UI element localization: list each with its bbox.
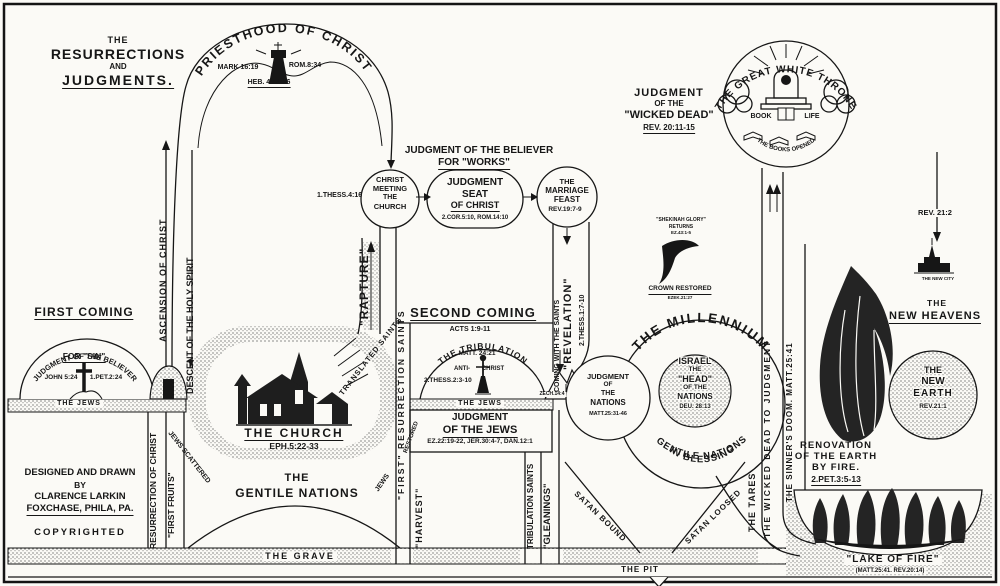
arrow-from-feast (563, 236, 571, 245)
shekinah-line-1: "SHEKINAH GLORY" (656, 218, 706, 223)
new-earth-ref: REV.21:1 (919, 404, 947, 411)
meeting-line-1: CHRIST (376, 176, 404, 184)
nations-line-2: OF (603, 382, 612, 389)
ref-romans: ROM.8:34 (289, 62, 321, 69)
new-earth-line-1: THE (924, 366, 942, 375)
ref-acts: ACTS 1:9-11 (450, 326, 491, 333)
ref-thess-2: 2.THESS.2:3-10 (424, 378, 472, 385)
seat-line-3: OF CHRIST (451, 201, 500, 212)
wicked-up-arrow-2 (773, 184, 781, 194)
arrow-into-meeting (387, 160, 395, 169)
wicked-heading-2: OF THE (654, 100, 683, 108)
ascension-arrow (162, 140, 170, 150)
crown-restored-ref: EZEK.21:27 (668, 296, 693, 301)
shekinah-ref: EZ.43:1-5 (671, 231, 691, 236)
new-heavens-line-2: NEW HEAVENS (889, 311, 981, 324)
antichrist-icon (475, 355, 491, 394)
coming-with-saints-label: COMING WITH THE SAINTS (554, 300, 561, 392)
wicked-up-arrow-1 (766, 184, 774, 194)
second-coming-heading: SECOND COMING (410, 306, 536, 321)
credits-line-3: CLARENCE LARKIN (34, 492, 125, 502)
feast-line-1: THE (560, 178, 575, 186)
israel-line-5: NATIONS (677, 393, 712, 401)
seat-refs: 2.COR.5:10, ROM.14:10 (442, 215, 508, 221)
ref-hebrews: HEB. 4:14-16 (248, 79, 291, 88)
meeting-line-3: THE (383, 194, 397, 201)
credits-line-1: DESIGNED AND DRAWN (24, 468, 135, 478)
feast-ref: REV.19:7-9 (548, 207, 581, 214)
life-label: LIFE (804, 113, 819, 120)
seat-line-1: JUDGMENT (447, 178, 503, 188)
sinners-doom-label: THE SINNER'S DOOM. MATT.25:41 (786, 342, 794, 502)
grave-label: THE GRAVE (263, 552, 337, 561)
credits-line-4: FOXCHASE, PHILA, PA. (27, 504, 134, 516)
tomb-icon (150, 366, 187, 399)
ref-mark: MARK 16:19 (218, 64, 259, 71)
ref-zechariah: ZECH.14:4 (537, 392, 566, 397)
church-ref: EPH.5:22-33 (269, 442, 318, 451)
first-resurrection-saints-label: "FIRST" RESURRECTION SAINTS (397, 309, 406, 500)
wicked-heading-1: JUDGMENT (634, 88, 704, 99)
book-of-life-icon (778, 108, 794, 120)
nations-ref: MATT.25:31-46 (589, 412, 627, 418)
meeting-line-4: CHURCH (374, 203, 407, 211)
rev21-arrow (933, 232, 941, 242)
gleanings-label: "GLEANINGS" (543, 484, 553, 549)
for-sin-label: FOR "SIN" (63, 352, 106, 363)
feast-line-2: MARRIAGE (545, 187, 589, 195)
book-label: BOOK (751, 113, 772, 120)
first-coming-heading: FIRST COMING (34, 306, 133, 320)
nations-line-3: THE (601, 390, 615, 397)
israel-line-4: OF THE (683, 385, 707, 392)
jews-judgment-line-1: JUDGMENT (452, 413, 508, 423)
ref-thess-1-7: 2.THESS.1:7-10 (579, 295, 586, 346)
crown-restored-label: CROWN RESTORED (648, 286, 711, 295)
israel-line-1: ISRAEL (678, 357, 711, 366)
lake-of-fire-label: "LAKE OF FIRE" (845, 555, 942, 565)
jews-strip-left-label: THE JEWS (55, 400, 103, 407)
renovation-line-2: OF THE EARTH (795, 452, 877, 462)
new-earth-line-3: EARTH (913, 389, 952, 399)
ref-peter: 1.PET.2:24 (90, 375, 122, 382)
works-heading-2: FOR "WORKS" (438, 158, 510, 170)
seat-line-2: SEAT (462, 190, 488, 200)
jews-strip-right-label: THE JEWS (456, 400, 504, 407)
ascension-label: ASCENSION OF CHRIST (159, 218, 168, 342)
revelation-label: "REVELATION" (563, 277, 574, 370)
jews-judgment-refs: EZ.22:19-22, JER.30:4-7, DAN.12:1 (427, 439, 533, 446)
renovation-line-1: RENOVATION (800, 441, 872, 451)
tares-label: THE TARES (748, 473, 757, 532)
copyright-label: COPYRIGHTED (34, 528, 126, 538)
pit-label: THE PIT (619, 566, 661, 574)
resurrection-of-christ-label: RESURRECTION OF CHRIST (149, 433, 158, 549)
israel-ref: DEU. 28:13 (679, 404, 710, 410)
wicked-to-judgment-label: THE WICKED DEAD TO JUDGMENT (763, 340, 772, 538)
antichrist-label-2: CHRIST (482, 366, 504, 372)
wicked-heading-3: "WICKED DEAD" (624, 110, 713, 121)
rapture-label: "RAPTURE" (358, 248, 370, 326)
ref-john: JOHN 5:24 (45, 375, 78, 382)
title-line-3: AND (109, 63, 126, 71)
new-city-caption: THE NEW CITY (922, 277, 954, 282)
shekinah-glory-icon (659, 240, 699, 284)
new-city-icon (914, 238, 954, 273)
title-line-2: RESURRECTIONS (51, 47, 185, 61)
svg-text:THE MILLENNIUM: THE MILLENNIUM (629, 310, 773, 354)
wicked-ref: REV. 20:11-15 (643, 124, 695, 134)
title-line-4: JUDGMENTS. (62, 73, 174, 89)
credits-line-2: BY (74, 481, 86, 490)
harvest-label: "HARVEST" (415, 488, 424, 548)
ref-rev-21-2: REV. 21:2 (916, 209, 954, 217)
lake-of-fire-refs: (MATT.25:41. REV.20:14) (854, 568, 927, 574)
nations-line-1: JUDGMENT (587, 373, 629, 381)
nations-line-4: NATIONS (590, 399, 625, 407)
ref-thess-4-16: 1.THESS.4:16 (317, 192, 362, 199)
tribulation-saints-label: TRIBULATION SAINTS (527, 464, 535, 549)
works-heading-1: JUDGMENT OF THE BELIEVER (405, 146, 553, 156)
millennium-arc-label: THE MILLENNIUM (629, 310, 773, 354)
feast-line-3: FEAST (554, 196, 580, 204)
priesthood-inner-line (198, 62, 382, 148)
resurrections-judgments-chart: PRIESTHOOD OF CHRIST JUDGMENT OF THE BEL… (0, 0, 1000, 586)
renovation-ref: 2.PET.3:5-13 (811, 475, 861, 486)
title-line-1: THE (108, 36, 129, 45)
israel-line-3: "HEAD" (678, 375, 712, 384)
gentile-nations-arc (188, 506, 400, 548)
open-books-icons (744, 132, 815, 145)
first-fruits-label: "FIRST FRUITS" (167, 472, 176, 538)
meeting-line-2: MEETING (373, 185, 407, 193)
new-earth-line-2: NEW (921, 377, 944, 387)
israel-line-2: THE (689, 367, 702, 374)
descent-label: DESCENT OF THE HOLY SPIRIT (186, 257, 195, 394)
new-heavens-line-1: THE (927, 299, 947, 308)
gentile-nations-line-2: GENTILE NATIONS (235, 487, 358, 499)
church-label: THE CHURCH (244, 427, 343, 441)
gentile-nations-line-1: THE (285, 473, 310, 484)
renovation-line-3: BY FIRE. (812, 463, 860, 473)
ref-matt-24: MATT. 24:21 (458, 351, 495, 358)
antichrist-label-1: ANTI- (454, 366, 470, 372)
jews-judgment-line-2: OF THE JEWS (443, 425, 518, 438)
renovation-flame-icon (820, 266, 893, 442)
